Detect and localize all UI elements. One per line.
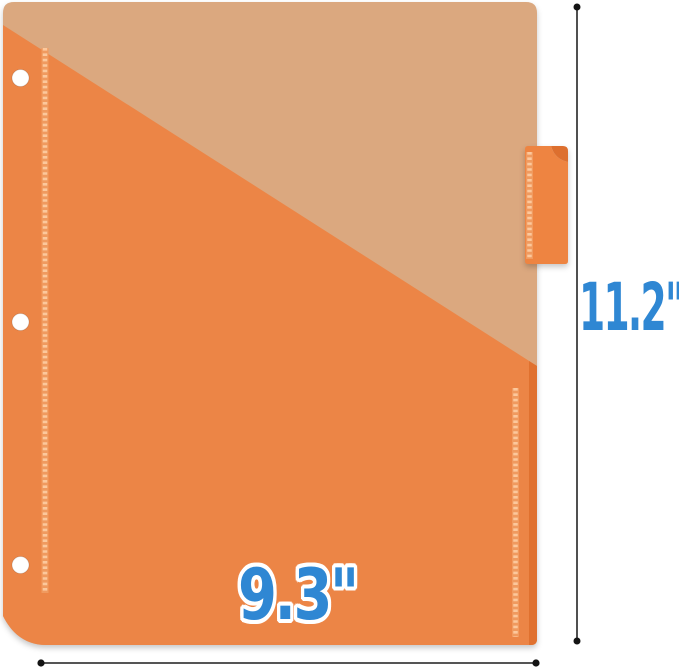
index-tab: [525, 146, 568, 264]
height-dimension-label: 11.2": [579, 275, 679, 341]
binder-hole-bottom: [12, 557, 29, 574]
height-dimension-top-dot: [574, 4, 581, 11]
width-dimension-label: 9.3": [238, 560, 357, 630]
binder-hole-top: [12, 70, 29, 87]
width-dimension-right-dot: [532, 659, 539, 666]
product-dimension-figure: 11.2" 9.3": [0, 0, 679, 667]
width-dimension-line: [37, 659, 539, 666]
binder-hole-middle: [12, 314, 29, 331]
pocket-right-edge: [529, 361, 537, 650]
height-dimension-bottom-dot: [574, 638, 581, 645]
width-dimension-left-dot: [37, 659, 44, 666]
